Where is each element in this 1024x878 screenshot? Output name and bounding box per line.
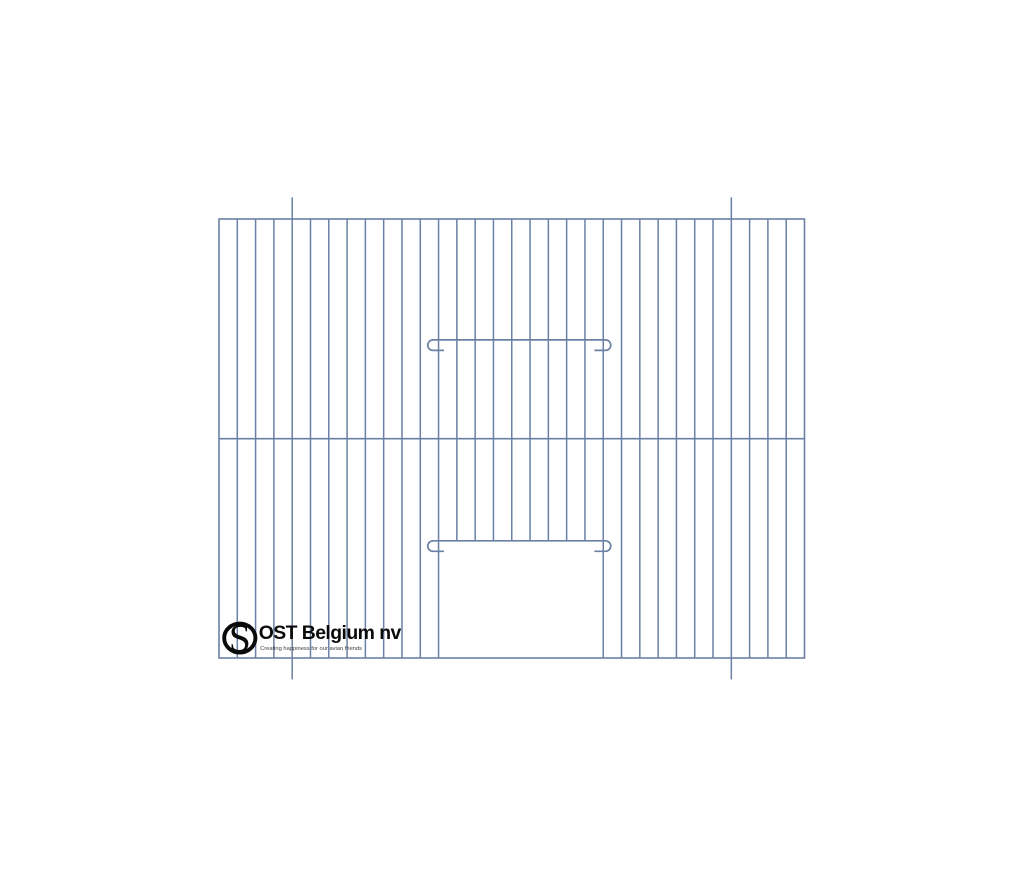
svg-text:S: S xyxy=(229,616,251,660)
svg-text:Creating happiness for our avi: Creating happiness for our avian friends xyxy=(260,646,362,652)
svg-text:OST Belgium nv: OST Belgium nv xyxy=(259,622,402,644)
